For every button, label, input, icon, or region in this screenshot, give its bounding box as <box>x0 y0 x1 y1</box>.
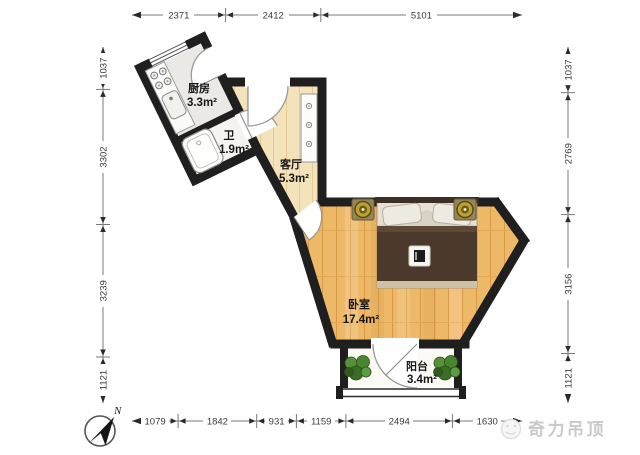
dim-tick <box>561 346 575 361</box>
plant-left-icon <box>345 356 372 381</box>
watermark-text: 奇力吊顶 <box>528 419 606 439</box>
floorplan-canvas: 厨房 3.3m² 卫 1.9m² 客厅 5.3m² 卧室 17.4m² 阳台 3… <box>0 0 640 455</box>
living-area-label: 5.3m² <box>279 173 309 185</box>
dim-arrow <box>132 418 141 424</box>
dim-right-3: 1121 <box>563 368 574 388</box>
pillow-left <box>382 203 422 226</box>
watermark-logo-icon <box>502 420 521 439</box>
compass-north-label: N <box>113 405 122 417</box>
dim-bottom-2: 931 <box>269 417 285 428</box>
dim-tick <box>171 414 186 428</box>
kitchen-name-label: 厨房 <box>188 81 210 95</box>
dimension-line-bottom: 1079 1842 931 1159 2494 1630 <box>132 414 522 428</box>
balcony-name-label: 阳台 <box>406 359 428 373</box>
dim-arrow <box>513 12 522 18</box>
dim-right-0: 1037 <box>563 59 574 80</box>
compass: N <box>85 405 122 446</box>
dim-tick <box>561 85 575 100</box>
compass-ring <box>85 416 115 446</box>
plant-right-icon <box>434 356 461 381</box>
dim-tick <box>445 414 460 428</box>
dim-tick <box>313 8 328 22</box>
dim-bottom-4: 2494 <box>389 417 410 428</box>
dim-bottom-0: 1079 <box>145 417 166 428</box>
dim-left-3: 1121 <box>98 370 109 390</box>
living-name-label: 客厅 <box>279 157 302 171</box>
dim-tick <box>96 217 110 232</box>
dim-top-1: 2412 <box>263 11 284 22</box>
dimension-line-top: 2371 2412 5101 <box>132 8 522 22</box>
dim-tick <box>249 414 264 428</box>
bedroom-area-label: 17.4m² <box>343 314 380 326</box>
nightstand-right <box>454 199 476 220</box>
dim-bottom-5: 1630 <box>477 417 498 428</box>
dim-arrow <box>132 12 141 18</box>
kitchen-area-label: 3.3m² <box>187 97 217 109</box>
dim-right-1: 2769 <box>563 143 574 164</box>
nightstand-left <box>352 199 374 220</box>
dim-left-1: 3302 <box>98 146 109 167</box>
bath-name-label: 卫 <box>224 129 235 142</box>
dim-top-0: 2371 <box>168 11 189 22</box>
bath-area-label: 1.9m² <box>219 144 249 156</box>
bedroom-name-label: 卧室 <box>348 297 370 311</box>
watermark: 奇力吊顶 <box>502 419 607 439</box>
dim-tick <box>561 207 575 222</box>
dim-tick <box>338 414 353 428</box>
dim-bottom-3: 1159 <box>311 417 331 428</box>
balcony-area-label: 3.4m² <box>407 374 437 386</box>
dim-arrow <box>565 394 571 403</box>
dim-right-2: 3156 <box>563 274 574 295</box>
dim-bottom-1: 1842 <box>207 417 228 428</box>
shoe-cabinet <box>301 94 317 162</box>
dim-tick <box>218 8 233 22</box>
dim-tick <box>289 414 304 428</box>
dim-tick <box>96 350 110 365</box>
dim-top-2: 5101 <box>411 11 432 22</box>
dimension-line-left: 1037 3302 3239 1121 <box>96 47 110 403</box>
dim-tick <box>96 82 110 97</box>
dimension-line-right: 1037 2769 3156 1121 <box>561 47 575 403</box>
dim-left-2: 3239 <box>98 280 109 301</box>
dim-left-0: 1037 <box>98 58 109 79</box>
floorplan: 厨房 3.3m² 卫 1.9m² 客厅 5.3m² 卧室 17.4m² 阳台 3… <box>0 0 640 455</box>
